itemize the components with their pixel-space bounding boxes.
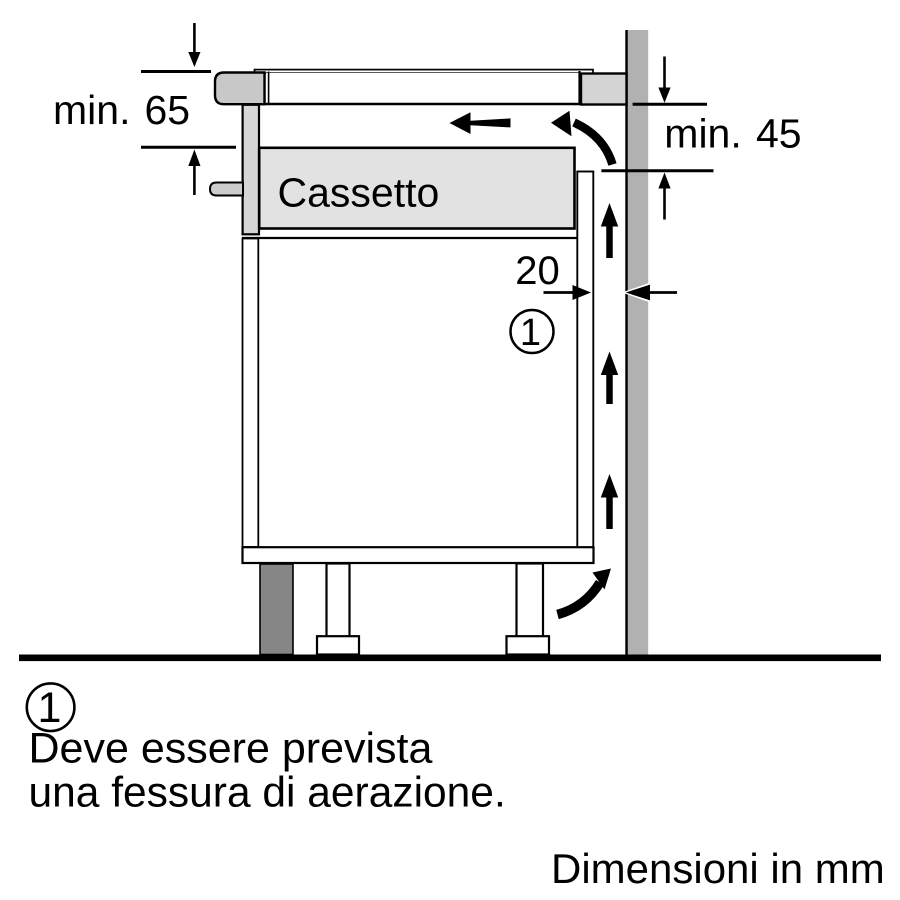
svg-text:Cassetto: Cassetto: [278, 170, 440, 216]
svg-text:20: 20: [515, 249, 560, 293]
svg-text:65: 65: [145, 87, 191, 133]
svg-text:Dimensioni in mm: Dimensioni in mm: [551, 845, 885, 892]
svg-text:min.: min.: [53, 87, 130, 133]
svg-text:min.: min.: [664, 111, 741, 157]
svg-text:1: 1: [520, 312, 541, 354]
svg-text:una fessura di aerazione.: una fessura di aerazione.: [29, 770, 506, 817]
svg-text:45: 45: [756, 111, 802, 157]
svg-text:Deve essere prevista: Deve essere prevista: [29, 725, 433, 773]
